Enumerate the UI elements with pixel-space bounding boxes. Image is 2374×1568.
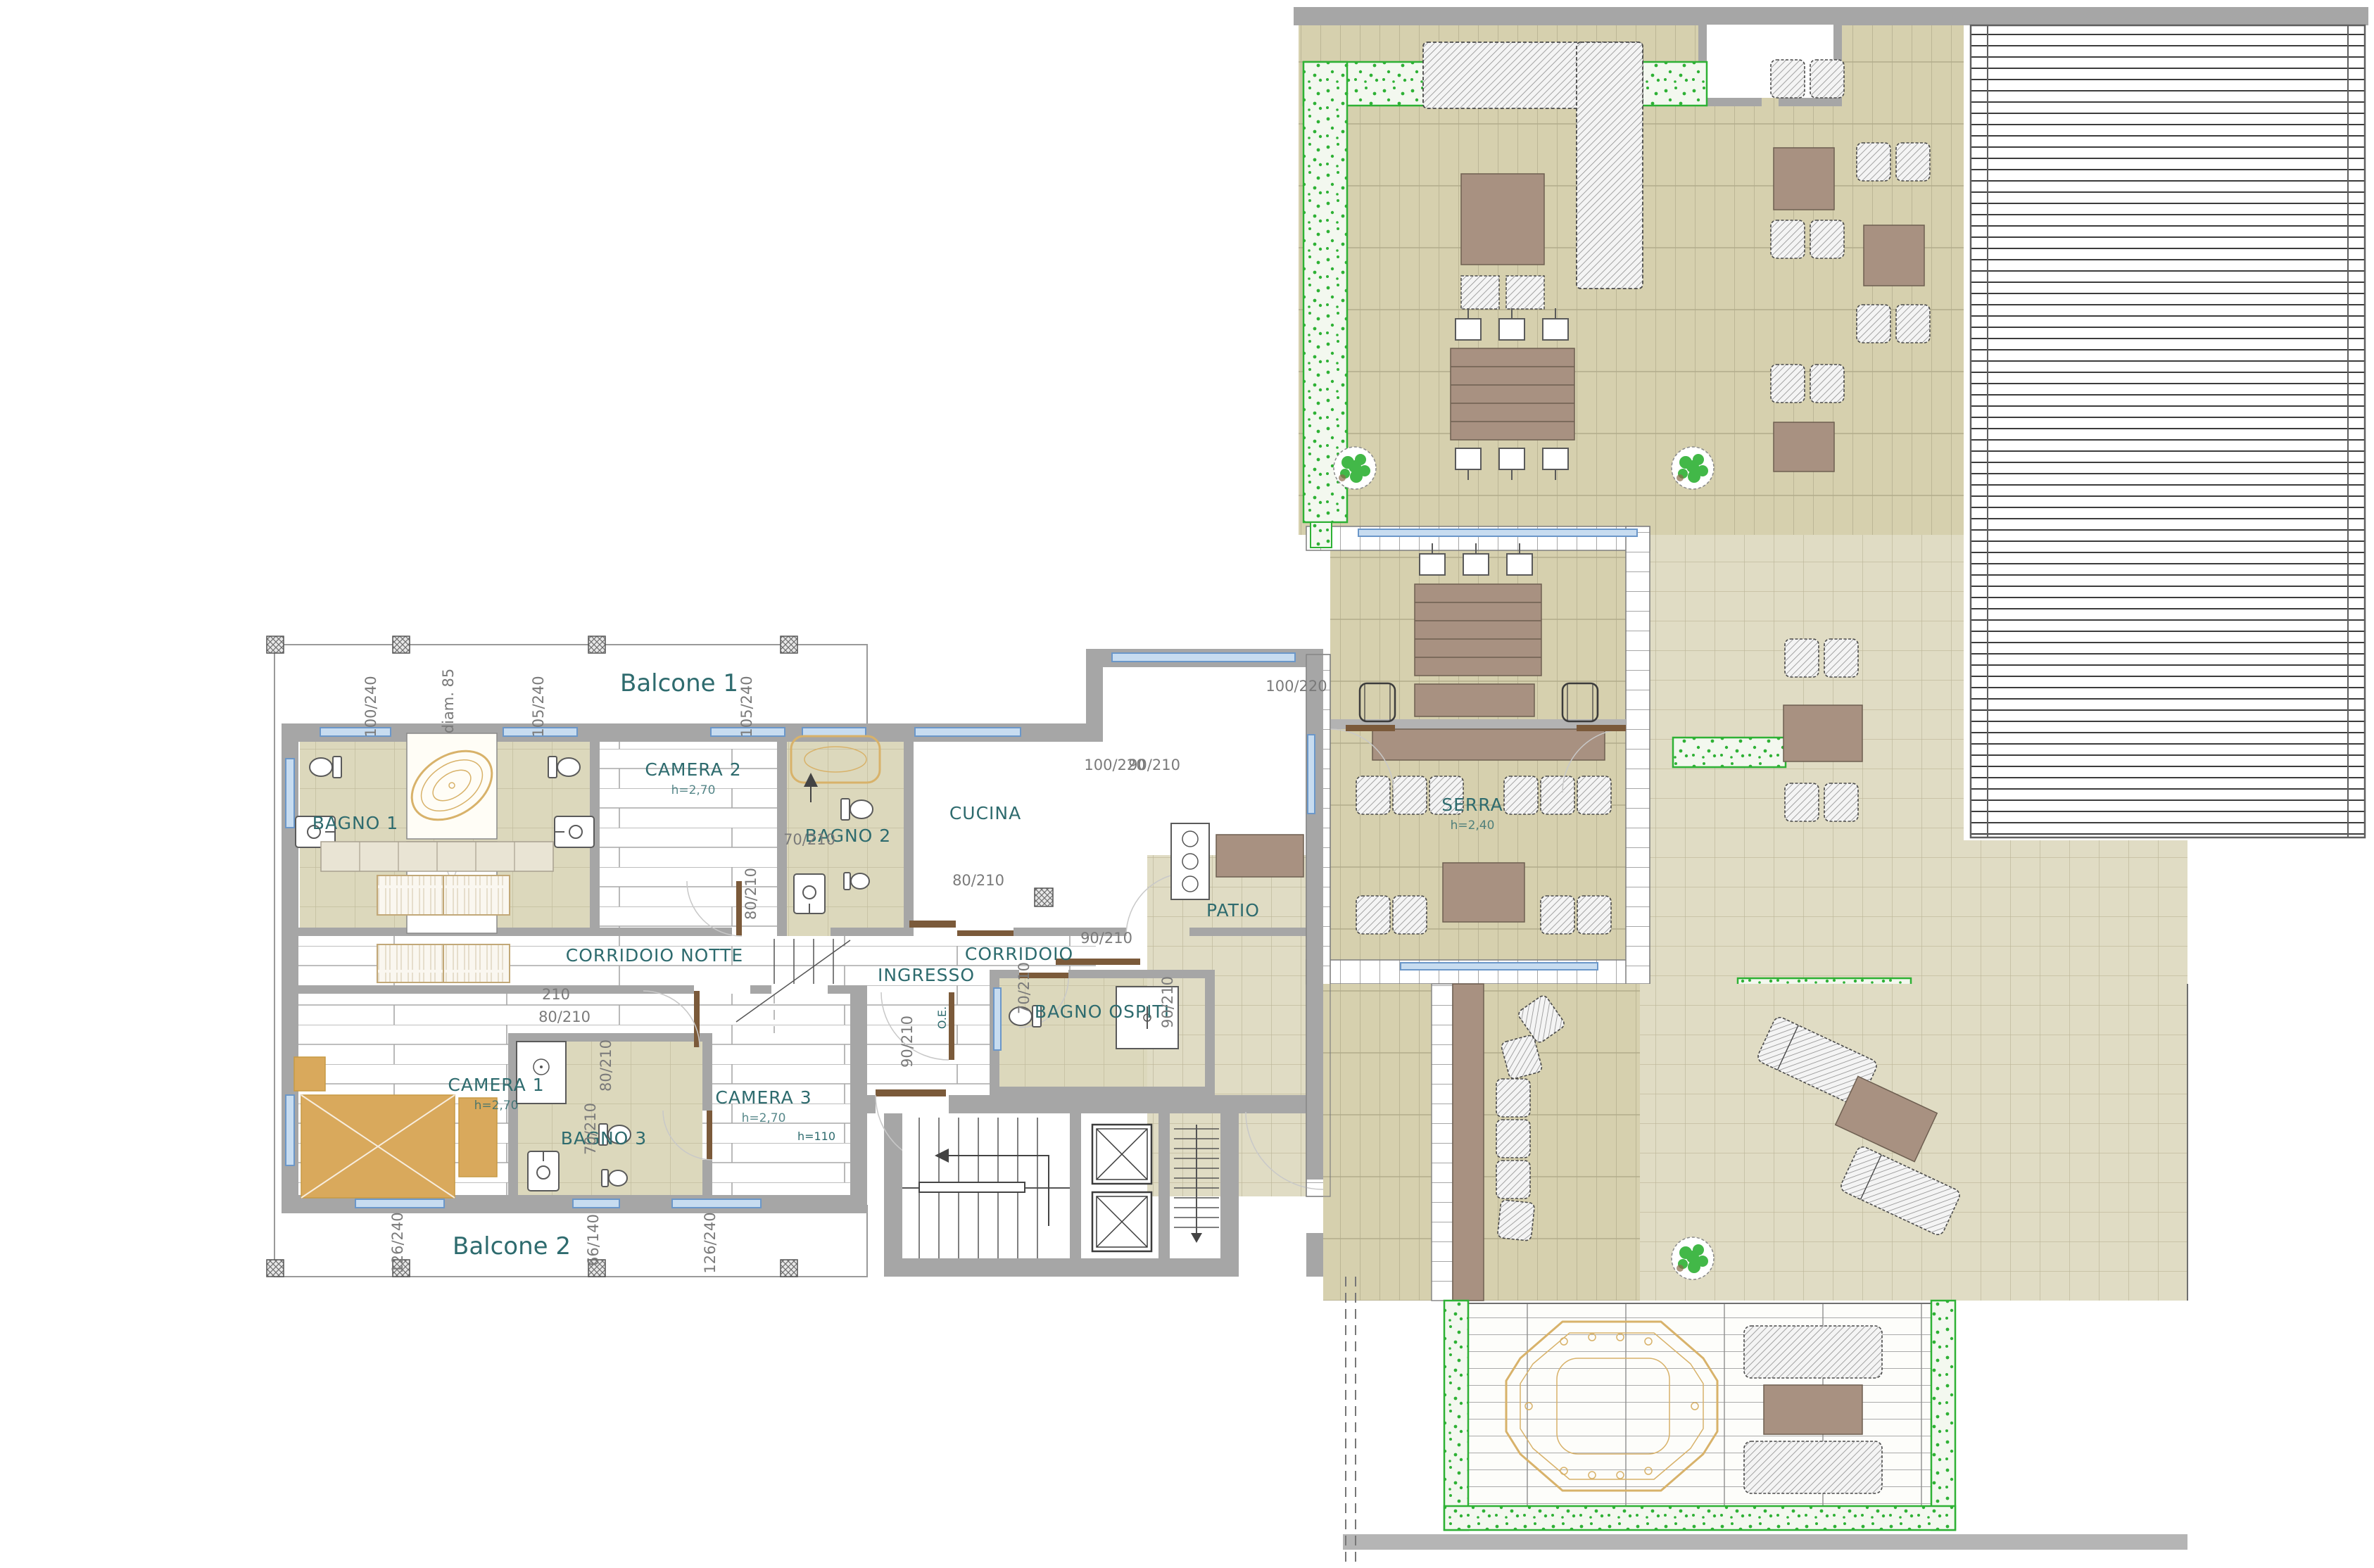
label-corridoio: CORRIDOIO xyxy=(965,944,1073,964)
loungers-jacuzzi xyxy=(1744,1326,1882,1493)
dim-diam-85: diam. 85 xyxy=(440,669,457,734)
elevator xyxy=(1092,1192,1151,1251)
dim-window-100-240: 100/240 xyxy=(362,676,379,737)
elevator xyxy=(1092,1125,1151,1184)
dim-door-90-210-b: 90/210 xyxy=(1128,757,1180,773)
serra-window-top xyxy=(1358,529,1637,536)
label-camera-2: CAMERA 2 xyxy=(645,759,741,780)
label-camera-3-height: h=2,70 xyxy=(742,1111,786,1125)
label-ingresso: INGRESSO xyxy=(878,965,975,985)
dim-window-105-240-a: 105/240 xyxy=(530,676,547,737)
dim-window-66-140: 66/140 xyxy=(585,1214,602,1266)
label-h110: h=110 xyxy=(797,1130,835,1143)
dim-door-90-210-a: 90/210 xyxy=(1080,930,1132,947)
dim-door-100-220-b: 100/220 xyxy=(1265,678,1327,695)
label-serra: SERRA xyxy=(1441,795,1503,815)
coffee-table xyxy=(1461,174,1544,265)
label-balcone-1: Balcone 1 xyxy=(620,669,738,697)
label-camera-1: CAMERA 1 xyxy=(448,1075,544,1095)
dim-door-70-210-a: 70/210 xyxy=(783,831,835,848)
slatted-deck-right xyxy=(1971,25,2365,837)
dim-window-105-240-b: 105/240 xyxy=(738,676,755,737)
dim-door-80-210-a: 80/210 xyxy=(743,868,759,920)
terrace-parapet-wall xyxy=(1294,7,1976,25)
lower-terrace xyxy=(1323,984,2187,1301)
planter-band xyxy=(1453,984,1484,1301)
label-camera-3: CAMERA 3 xyxy=(715,1087,812,1108)
serra-border-right xyxy=(1626,526,1650,984)
label-bagno-1: BAGNO 1 xyxy=(312,813,398,833)
ingresso-floor xyxy=(850,985,990,1095)
tree xyxy=(1672,447,1714,489)
dim-door-90-210-d: 90/210 xyxy=(899,1016,916,1068)
label-balcone-2: Balcone 2 xyxy=(453,1232,571,1260)
label-patio: PATIO xyxy=(1206,900,1260,921)
dim-door-80-210-c: 80/210 xyxy=(538,1009,591,1025)
dim-door-80-210-b: 80/210 xyxy=(952,872,1004,889)
label-corridoio-notte: CORRIDOIO NOTTE xyxy=(566,945,743,966)
label-bagno-ospiti: BAGNO OSPITI xyxy=(1035,1001,1170,1022)
label-serra-height: h=2,40 xyxy=(1451,818,1495,833)
dim-window-126-240-b: 126/240 xyxy=(702,1212,719,1273)
dim-door-70-210-c: 70/210 xyxy=(582,1103,599,1155)
label-camera-1-height: h=2,70 xyxy=(474,1099,519,1113)
floor-plan-canvas: Balcone 1Balcone 2BAGNO 1CAMERA 2h=2,70B… xyxy=(0,0,2374,1568)
serra-sideboard xyxy=(1372,729,1605,760)
tree xyxy=(1334,447,1376,489)
sidewalk-band xyxy=(1343,1534,2187,1550)
label-bagno-3: BAGNO 3 xyxy=(561,1128,647,1149)
terrace-dining-group xyxy=(1451,308,1574,480)
dim-door-80-210-d: 80/210 xyxy=(598,1039,614,1092)
cucina-floor xyxy=(914,732,1086,928)
label-cucina: CUCINA xyxy=(949,803,1021,823)
label-camera-2-height: h=2,70 xyxy=(671,783,716,797)
jacuzzi-terrace xyxy=(1343,1301,2187,1550)
dim-door-90-210-c: 90/210 xyxy=(1159,976,1176,1028)
serra-window-bottom xyxy=(1401,963,1598,970)
label-oe: O.E. xyxy=(935,1006,949,1029)
dim-window-126-240-a: 126/240 xyxy=(389,1212,406,1273)
dim-door-210: 210 xyxy=(542,986,570,1003)
tree xyxy=(1672,1237,1714,1279)
dim-door-70-210-b: 70/210 xyxy=(1016,962,1033,1014)
